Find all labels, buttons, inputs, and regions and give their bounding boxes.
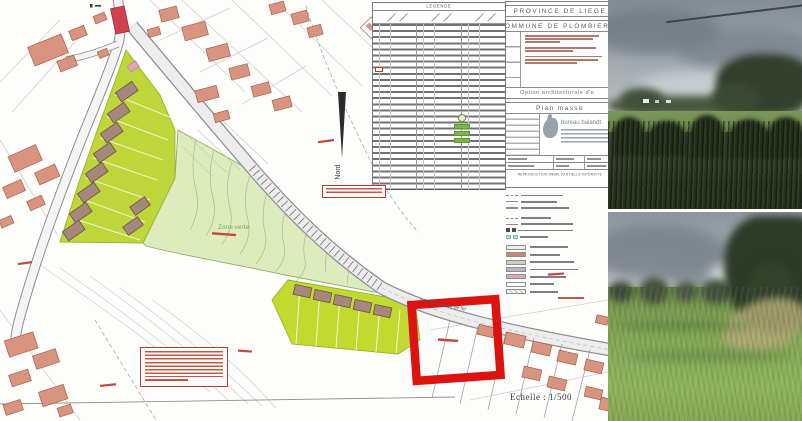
commune-row: COMMUNE DE PLOMBIERES xyxy=(506,21,608,32)
meta-cell xyxy=(585,156,608,162)
title-paragraph xyxy=(525,35,608,43)
red-note-small xyxy=(322,185,386,198)
title-block-side-column xyxy=(506,32,521,87)
site-photo-top xyxy=(608,0,802,209)
legend-table: LEGENDE xyxy=(372,2,506,190)
meta-cell xyxy=(554,163,584,169)
province-label: PROVINCE DE LIEGE xyxy=(514,8,607,15)
firm-row: bureau balandt xyxy=(506,114,608,156)
legend-diagonal-label xyxy=(487,13,496,22)
map-symbols xyxy=(90,4,101,8)
meta-cell xyxy=(585,163,608,169)
meta-cell xyxy=(554,156,584,162)
legend-entries xyxy=(373,24,505,190)
firm-name: bureau balandt xyxy=(561,120,601,126)
color-legend-swatch-row xyxy=(506,289,606,295)
color-legend-item xyxy=(506,222,606,227)
notice-row: REPRODUCTION MEME PARTIELLE INTERDITE xyxy=(506,170,608,179)
legend-green-swatch xyxy=(454,124,470,129)
title-block-body xyxy=(506,32,608,88)
title-paragraph xyxy=(525,56,608,64)
scale-label: Echelle : 1/500 xyxy=(510,392,572,402)
plan-type-label: Plan masse xyxy=(536,105,584,112)
north-label: Nord xyxy=(335,164,342,179)
option-label: Option architecturale d'e xyxy=(520,90,594,96)
meta-cell xyxy=(506,163,554,169)
green-zone-label: Zone verte xyxy=(218,224,249,231)
legend-green-circle xyxy=(458,114,466,122)
firm-logo-zone: bureau balandt xyxy=(540,114,608,155)
color-legend-red-note xyxy=(558,297,584,299)
color-legend-swatch-row xyxy=(506,274,606,280)
legend-diagonal-label xyxy=(399,13,408,22)
legend-diagonal-label xyxy=(443,13,452,22)
commune-label: COMMUNE DE PLOMBIERES xyxy=(506,23,608,30)
title-block: PROVINCE DE LIEGE COMMUNE DE PLOMBIERES xyxy=(505,1,608,188)
option-row: Option architecturale d'e xyxy=(506,88,608,99)
distant-house xyxy=(643,99,649,103)
swatch-hatched xyxy=(506,289,526,294)
swatch-lavender xyxy=(506,267,526,272)
title-block-meta-row xyxy=(506,156,608,163)
swatch-salmon xyxy=(506,252,526,257)
color-legend-swatch-row xyxy=(506,244,606,250)
color-legend-item xyxy=(506,205,606,210)
distant-house xyxy=(655,100,659,103)
legend-diagonal-label xyxy=(475,13,484,22)
color-legend-item xyxy=(506,216,606,221)
red-note-box xyxy=(140,347,228,387)
swatch-white xyxy=(506,282,526,287)
color-legend-swatch-row xyxy=(506,259,606,265)
north-arrow-icon: Nord xyxy=(335,92,346,180)
red-building xyxy=(110,6,129,34)
firm-address-lines xyxy=(561,129,608,145)
red-note-last-line xyxy=(145,379,188,381)
color-legend-swatch-row xyxy=(506,252,606,258)
color-legend-item xyxy=(506,228,606,233)
firm-logo-icon xyxy=(543,118,558,138)
firm-side-notes xyxy=(506,114,540,155)
legend-green-swatch xyxy=(454,138,470,143)
swatch-green-gray xyxy=(506,260,526,265)
red-note-text-lines xyxy=(326,188,382,195)
title-block-paragraphs xyxy=(521,32,608,87)
province-row: PROVINCE DE LIEGE xyxy=(506,6,608,17)
notice-label: REPRODUCTION MEME PARTIELLE INTERDITE xyxy=(518,173,603,176)
tree-cluster xyxy=(711,84,759,113)
weed-texture xyxy=(608,121,802,209)
grass-texture xyxy=(608,287,802,421)
distant-house xyxy=(666,100,671,103)
color-legend-swatch-row xyxy=(506,266,606,272)
legend-header-label: LEGENDE xyxy=(427,4,452,8)
legend-column-2 xyxy=(416,24,460,190)
legend-column-3 xyxy=(461,24,505,190)
legend-header: LEGENDE xyxy=(373,3,505,11)
legend-red-cell xyxy=(375,67,383,72)
legend-green-swatch xyxy=(454,131,470,136)
color-legend-item xyxy=(506,234,606,239)
legend-diagonal-label xyxy=(387,13,396,22)
legend-column-1 xyxy=(373,24,416,190)
site-plan-panel: Nord Zone verte rue du Chemin de fer Ech… xyxy=(0,0,608,421)
swatch-pink xyxy=(506,274,526,279)
color-legend-item xyxy=(506,199,606,204)
title-block-meta-row xyxy=(506,163,608,170)
color-legend-item xyxy=(506,193,606,198)
color-legend-swatch-row xyxy=(506,281,606,287)
color-legend xyxy=(506,193,606,299)
title-paragraph xyxy=(525,47,608,52)
tree-cluster xyxy=(620,88,664,111)
swatch-cream xyxy=(506,245,526,250)
red-note-text-lines xyxy=(145,351,223,377)
legend-subheader xyxy=(373,11,505,24)
site-photo-bottom xyxy=(608,212,802,421)
plan-type-row: Plan masse xyxy=(506,103,608,114)
screenshot-root: Nord Zone verte rue du Chemin de fer Ech… xyxy=(0,0,802,421)
meta-cell xyxy=(506,156,554,162)
legend-diagonal-label xyxy=(431,13,440,22)
